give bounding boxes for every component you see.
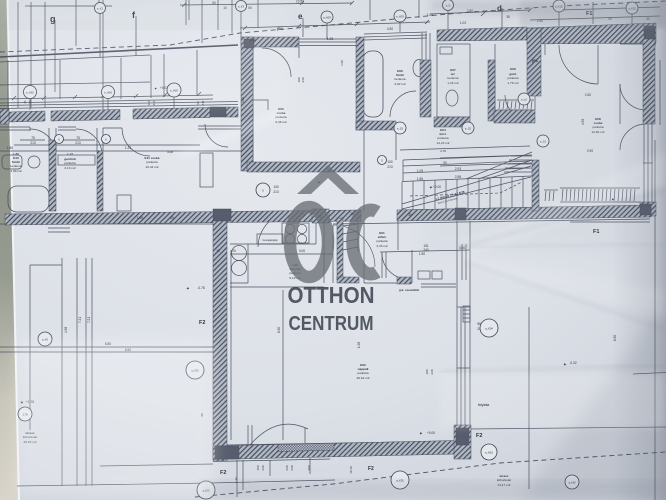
svg-text:kerámia: kerámia xyxy=(394,77,405,81)
svg-text:F2: F2 xyxy=(199,320,205,326)
svg-text:240: 240 xyxy=(290,465,294,470)
svg-text:-0.78: -0.78 xyxy=(197,286,204,290)
svg-text:100: 100 xyxy=(256,465,260,470)
svg-text:parketta: parketta xyxy=(376,239,387,243)
svg-text:10,19: 10,19 xyxy=(349,466,353,474)
svg-text:6.30: 6.30 xyxy=(277,327,281,333)
svg-text:100: 100 xyxy=(425,369,429,374)
svg-text:g.k. szerelőfal: g.k. szerelőfal xyxy=(399,288,419,292)
svg-text:e_H01: e_H01 xyxy=(485,451,493,455)
svg-text:3.00: 3.00 xyxy=(299,249,305,253)
svg-text:parketta: parketta xyxy=(64,161,75,165)
svg-text:✦: ✦ xyxy=(563,362,567,367)
svg-text:240: 240 xyxy=(261,465,265,470)
svg-text:e_S2: e_S2 xyxy=(397,127,404,131)
svg-text:a_K04: a_K04 xyxy=(485,327,493,331)
svg-text:1.98: 1.98 xyxy=(357,342,361,348)
svg-text:parketta: parketta xyxy=(357,371,368,375)
svg-text:75: 75 xyxy=(31,136,35,140)
svg-text:213: 213 xyxy=(387,165,393,169)
svg-text:4.00: 4.00 xyxy=(167,150,173,154)
svg-text:✦: ✦ xyxy=(419,431,423,436)
svg-text:240: 240 xyxy=(430,369,434,374)
svg-text:F2: F2 xyxy=(220,470,226,476)
svg-text:1.05: 1.05 xyxy=(327,37,333,41)
svg-text:10,44 m2: 10,44 m2 xyxy=(146,165,159,169)
svg-text:75: 75 xyxy=(76,136,80,140)
svg-text:4,59 m2: 4,59 m2 xyxy=(10,169,21,173)
svg-text:9,46 m2: 9,46 m2 xyxy=(275,120,286,124)
svg-text:mosogatógép: mosogatógép xyxy=(262,238,278,242)
svg-text:1.23: 1.23 xyxy=(125,146,131,150)
svg-text:20: 20 xyxy=(170,216,174,220)
svg-text:-0.02: -0.02 xyxy=(569,361,576,365)
svg-text:10: 10 xyxy=(216,249,220,253)
svg-text:3,13 m2: 3,13 m2 xyxy=(64,166,75,170)
svg-text:213: 213 xyxy=(75,141,81,145)
svg-text:7.21: 7.21 xyxy=(87,317,91,323)
svg-text:29,62 m2: 29,62 m2 xyxy=(357,376,370,380)
svg-text:213: 213 xyxy=(273,190,279,194)
svg-text:7.21: 7.21 xyxy=(78,317,82,323)
svg-text:213: 213 xyxy=(30,141,36,145)
svg-text:3,33 m2: 3,33 m2 xyxy=(376,244,387,248)
svg-text:F2: F2 xyxy=(476,433,482,439)
svg-text:OTTHON: OTTHON xyxy=(288,282,375,308)
svg-text:+0.00: +0.00 xyxy=(427,431,435,435)
svg-text:CENTRUM: CENTRUM xyxy=(289,312,374,335)
svg-text:F2: F2 xyxy=(368,466,374,472)
svg-text:240: 240 xyxy=(285,465,289,470)
svg-text:100: 100 xyxy=(273,185,279,189)
svg-text:1.05: 1.05 xyxy=(340,60,344,66)
svg-text:4,62 m2: 4,62 m2 xyxy=(394,82,405,86)
svg-text:360: 360 xyxy=(307,465,311,470)
svg-text:240: 240 xyxy=(301,77,305,82)
svg-text:✦: ✦ xyxy=(186,286,190,291)
svg-text:20: 20 xyxy=(232,249,236,253)
svg-text:kerámia: kerámia xyxy=(10,164,21,168)
svg-text:4.38: 4.38 xyxy=(64,327,68,333)
svg-text:100: 100 xyxy=(387,160,393,164)
svg-text:1.80: 1.80 xyxy=(7,146,13,150)
svg-text:1.05: 1.05 xyxy=(137,216,143,220)
svg-text:parketta: parketta xyxy=(146,160,157,164)
svg-text:30: 30 xyxy=(408,213,412,217)
svg-text:1.23: 1.23 xyxy=(67,152,73,156)
